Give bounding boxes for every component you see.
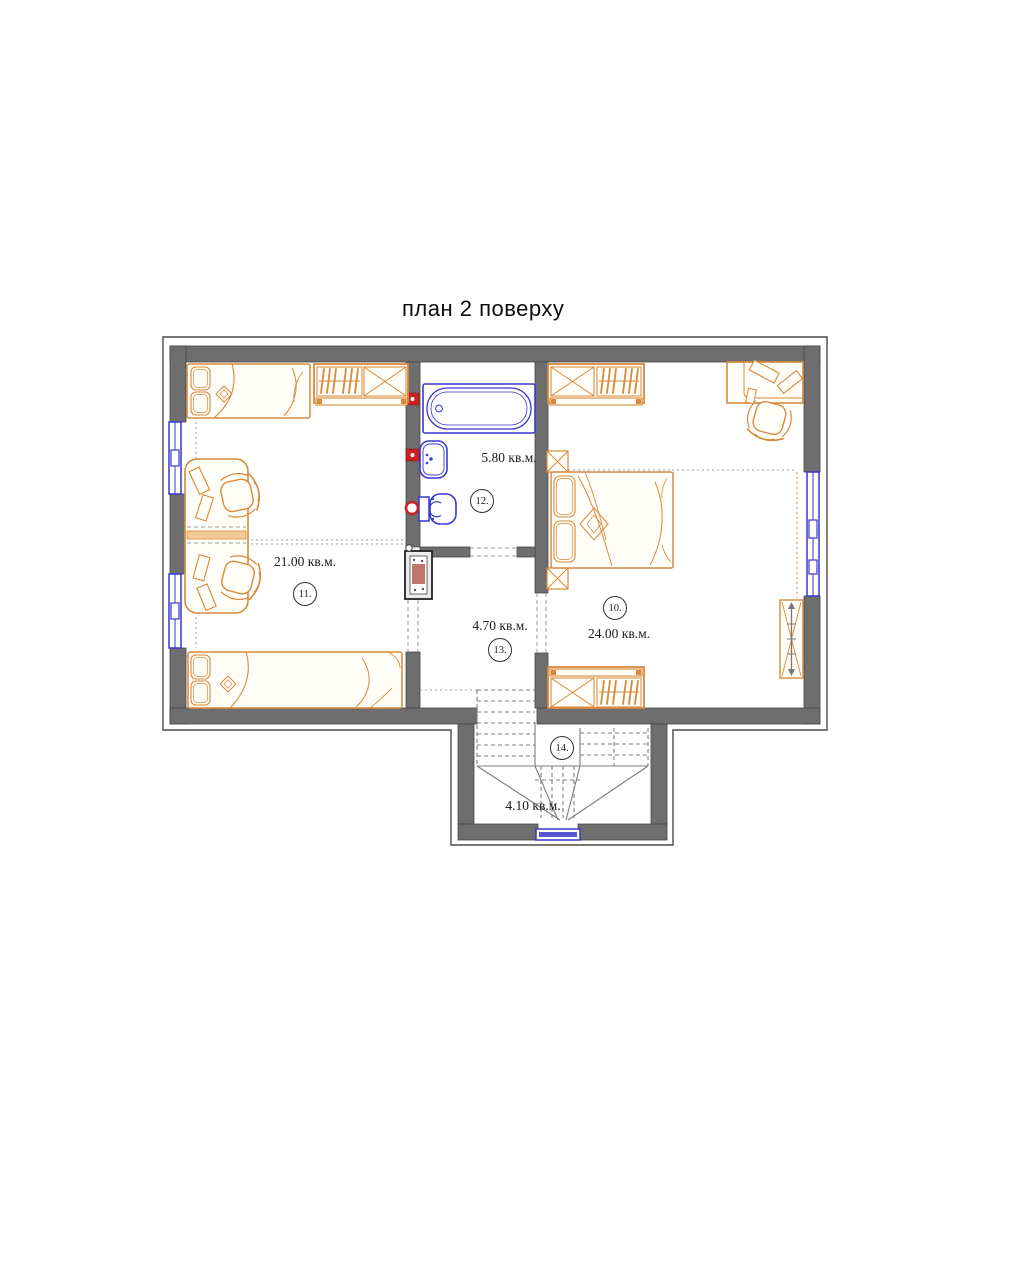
room-10-number-badge: 10. xyxy=(603,596,627,620)
room-10-area-label: 24.00 кв.м. xyxy=(588,626,650,642)
vent-shaft xyxy=(405,545,432,599)
window-stairwell xyxy=(536,829,580,840)
office-chair-icon xyxy=(743,398,795,445)
sink-icon xyxy=(420,441,447,478)
nightstand-icon xyxy=(547,568,568,589)
window-right xyxy=(807,472,819,596)
window-left-lower xyxy=(169,574,181,648)
bed-double-icon xyxy=(551,472,673,568)
bathtub-icon xyxy=(423,384,535,433)
floor-plan-page: план 2 поверху xyxy=(0,0,1014,1280)
wardrobe-top-right-icon xyxy=(548,364,644,405)
room-14-area-label: 4.10 кв.м. xyxy=(505,798,560,814)
wardrobe-bottom-right-icon xyxy=(548,667,644,708)
attic-ladder-icon xyxy=(780,600,803,678)
room-12-number-badge: 12. xyxy=(470,489,494,513)
room-11-area-label: 21.00 кв.м. xyxy=(274,554,336,570)
bed-single-bottom-icon xyxy=(188,652,402,708)
toilet-icon xyxy=(419,494,456,524)
wardrobe-top-left-icon xyxy=(314,364,408,405)
nightstand-icon xyxy=(547,451,568,472)
room-11-number-badge: 11. xyxy=(293,582,317,606)
window-left-upper xyxy=(169,422,181,494)
room-13-area-label: 4.70 кв.м. xyxy=(472,618,527,634)
bed-single-top-icon xyxy=(187,364,310,418)
room-13-number-badge: 13. xyxy=(488,638,512,662)
room-12-area-label: 5.80 кв.м. xyxy=(481,450,536,466)
desk-icon xyxy=(727,360,803,404)
room-14-number-badge: 14. xyxy=(550,736,574,760)
